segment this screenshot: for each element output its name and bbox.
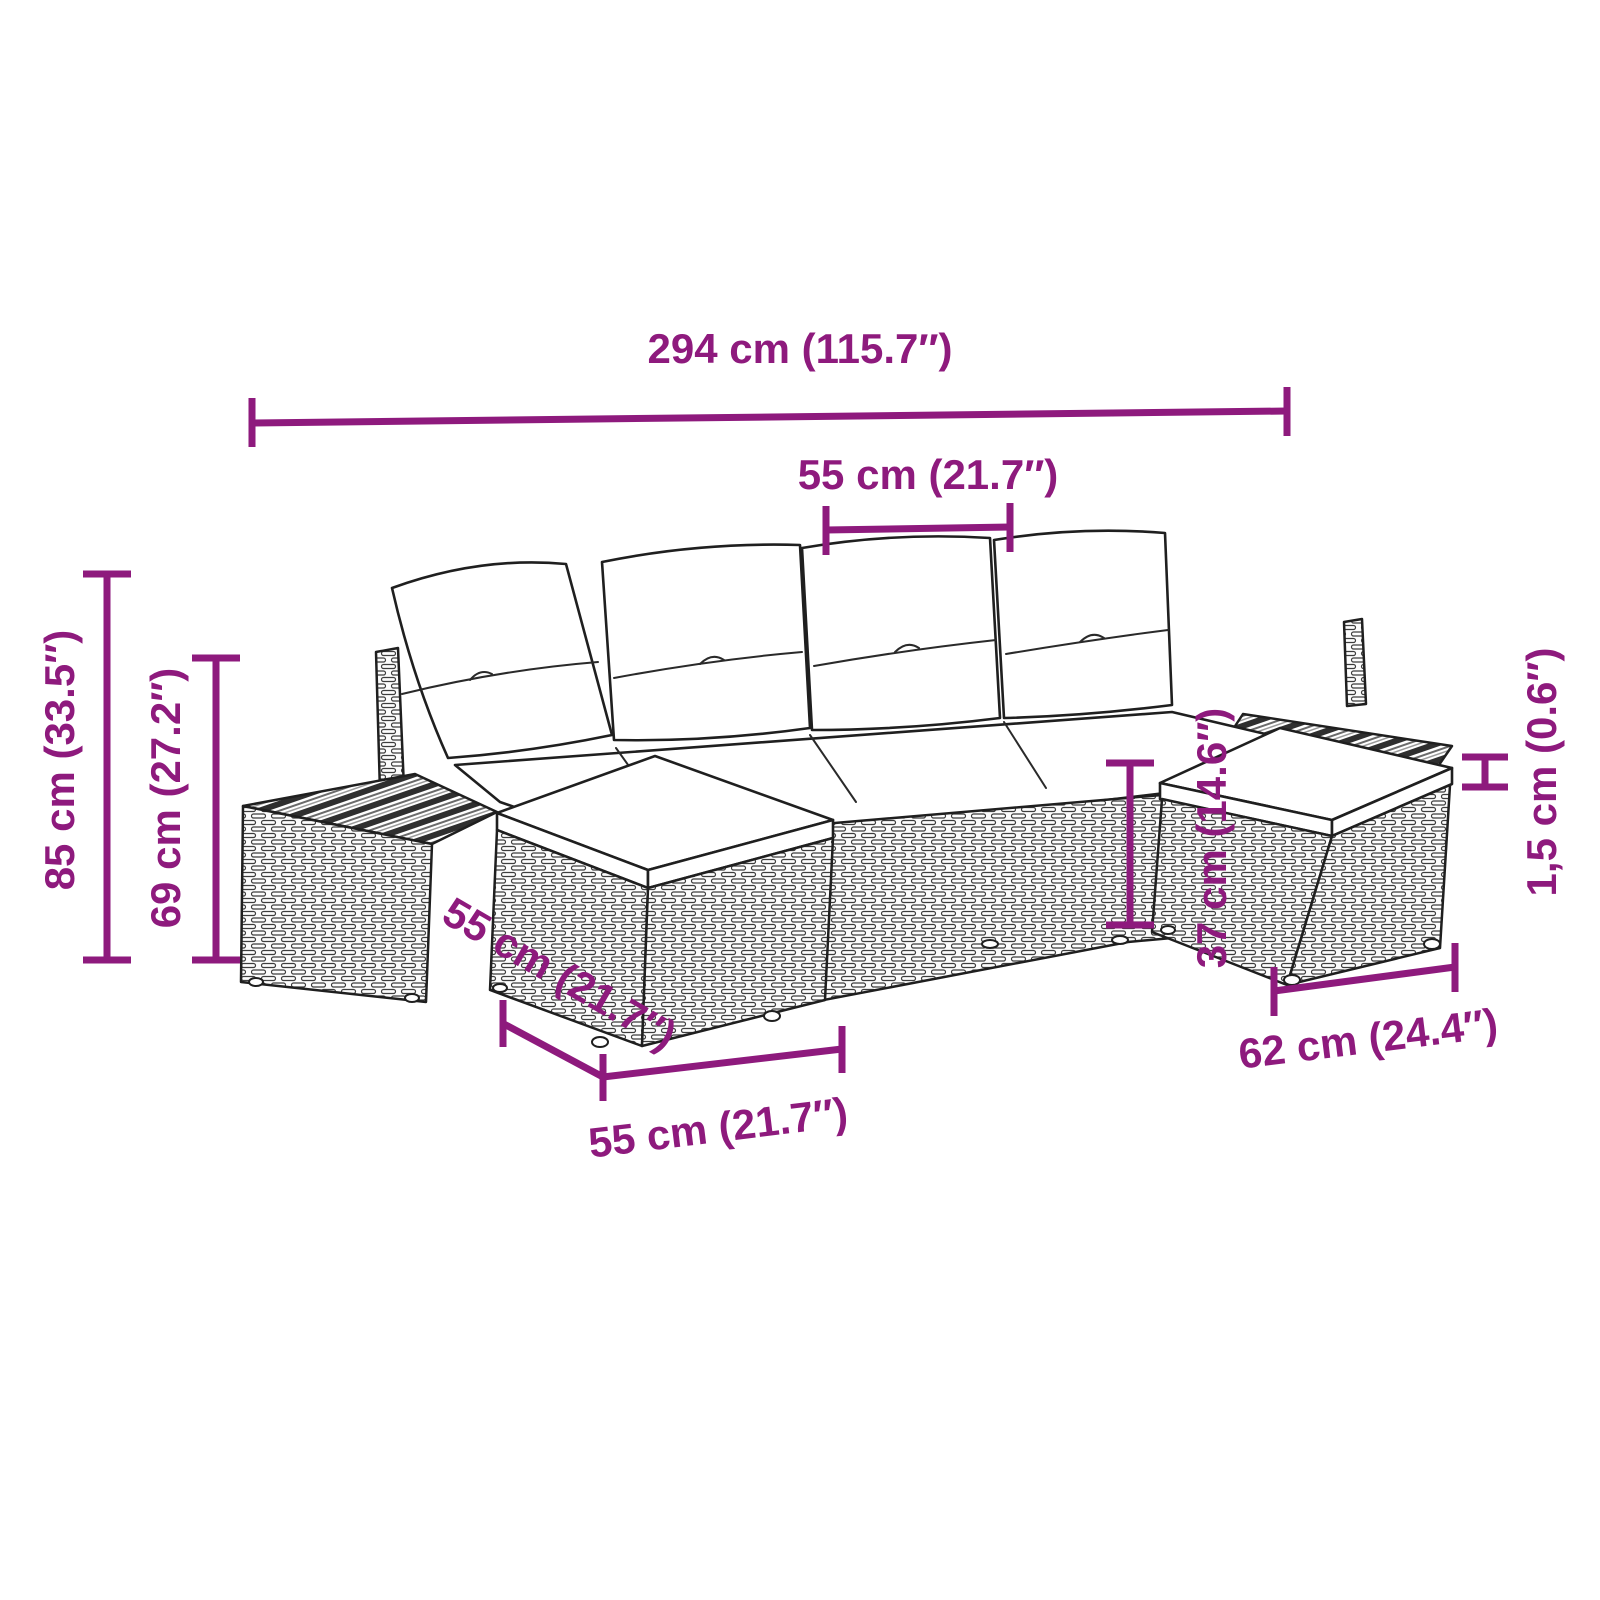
back-cushion-2 [602,545,810,741]
dim-backrest-height-label: 69 cm (27.2″) [142,668,189,929]
sofa-back-post-left [376,648,404,792]
dim-seat-width-label: 55 cm (21.7″) [798,451,1059,498]
dim-overall-width-label: 294 cm (115.7″) [648,325,953,372]
back-cushion-3 [802,536,1000,730]
dim-backrest-height-line [192,658,240,960]
dim-overall-height-line [83,574,131,960]
sofa-back-post-right [1344,619,1366,706]
dim-module-width-label: 55 cm (21.7″) [586,1088,850,1166]
dim-cushion-thickness-label: 1,5 cm (0.6″) [1518,648,1565,897]
dim-overall-height-label: 85 cm (33.5″) [36,630,83,891]
dim-overall-width-line [252,387,1287,447]
back-cushion-1 [392,562,612,758]
furniture-illustration [241,531,1452,1047]
dim-stool-height-label: 37 cm (14.6″) [1188,708,1235,969]
diagram-canvas: 294 cm (115.7″) 55 cm (21.7″) 85 cm (33.… [0,0,1600,1600]
dimension-diagram: 294 cm (115.7″) 55 cm (21.7″) 85 cm (33.… [0,0,1600,1600]
back-cushion-4 [994,531,1172,718]
dim-cushion-thickness-bracket [1462,757,1508,787]
